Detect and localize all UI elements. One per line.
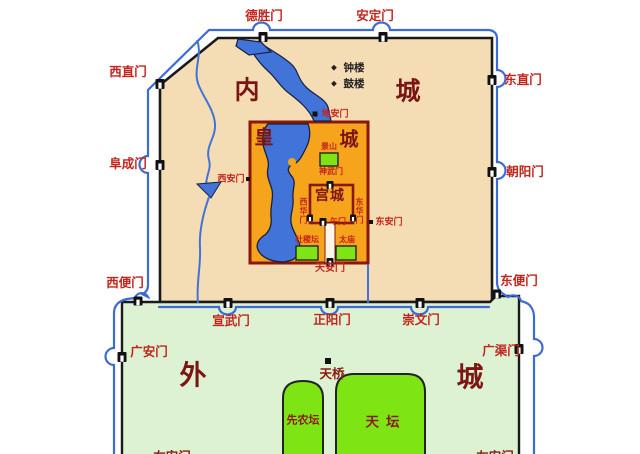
dongzhimen-label: 东直门: [504, 74, 542, 87]
bell-tower-bullet-icon: ◆: [331, 65, 336, 72]
inner-city-char-1: 内: [234, 79, 259, 104]
dongbianmen-label: 东便门: [500, 275, 538, 288]
tiantan-label: 天坛: [366, 415, 407, 429]
gate-marker-icon: [320, 218, 327, 226]
drum-tower-label: 鼓楼: [344, 79, 365, 90]
taimiao-label: 太庙: [339, 236, 355, 244]
fuchengmen-label: 阜成门: [109, 158, 147, 171]
wumen-label: 午门: [330, 218, 346, 226]
xizhimen-label: 西直门: [109, 66, 147, 79]
map-canvas: [0, 0, 640, 454]
xianmen-label: 西安门: [217, 175, 244, 184]
gate-marker-icon: [379, 32, 388, 42]
gate-marker-icon: [488, 75, 497, 85]
map-dot-icon: [246, 177, 250, 181]
map-dot-icon: [313, 112, 318, 117]
shejitan-label: 社稷坛: [295, 236, 319, 244]
gate-marker-icon: [224, 298, 233, 308]
gate-marker-icon: [156, 160, 165, 170]
xuanwumen-label: 宣武门: [212, 315, 250, 328]
donghuamen-label: 东华门: [355, 198, 363, 225]
gate-marker-icon: [259, 32, 268, 42]
jingshan-park: [320, 153, 338, 166]
shenwumen-label: 神武门: [319, 168, 343, 176]
gate-marker-icon: [326, 298, 335, 308]
beijing-city-map: 德胜门安定门西直门阜成门东直门朝阳门西便门东便门宣武门正阳门崇文门广安门广渠门内…: [0, 0, 640, 454]
imperial-city-char-1: 皇: [254, 129, 273, 148]
zhengyangmen-label: 正阳门: [313, 314, 351, 327]
gate-marker-icon: [156, 79, 165, 89]
deshengmen-label: 德胜门: [245, 10, 283, 23]
taimiao-site: [336, 246, 356, 260]
chongwenmen-label: 崇文门: [402, 314, 440, 327]
gate-marker-icon: [118, 352, 127, 362]
gate-marker-icon: [134, 297, 143, 306]
tianqiao-label: 天桥: [319, 368, 344, 381]
imperial-way-corridor: [325, 223, 335, 263]
inner-city-char-2: 城: [395, 80, 420, 105]
xihuamen-label: 西华门: [299, 198, 307, 225]
map-dot-icon: [325, 358, 331, 364]
guanganmen-label: 广安门: [130, 346, 168, 359]
gate-marker-icon: [416, 298, 425, 308]
palace-city-label: 宫城: [315, 188, 345, 202]
jingshan-label: 景山: [321, 143, 337, 151]
map-dot-icon: [369, 220, 373, 224]
tiananmen-label: 天安门: [315, 264, 345, 274]
chaoyangmen-label: 朝阳门: [506, 166, 544, 179]
outer-city-char-1: 外: [180, 363, 207, 390]
gate-marker-icon: [488, 167, 497, 177]
guangqumen-label: 广渠门: [482, 345, 520, 358]
andingmen-label: 安定门: [356, 10, 394, 23]
qionghua-island: [288, 158, 296, 166]
imperial-city-char-2: 城: [339, 131, 358, 150]
bell-tower-label: 钟楼: [344, 63, 365, 74]
drum-tower-bullet-icon: ◆: [331, 81, 336, 88]
shejitan-site: [296, 246, 318, 260]
gate-marker-icon: [493, 290, 501, 299]
donganmen-label: 东安门: [375, 218, 402, 227]
xiannongtan-label: 先农坛: [287, 416, 320, 427]
diananmen-label: 地安门: [321, 110, 348, 119]
outer-city-char-2: 城: [457, 365, 484, 392]
xibianmen-label: 西便门: [106, 277, 144, 290]
